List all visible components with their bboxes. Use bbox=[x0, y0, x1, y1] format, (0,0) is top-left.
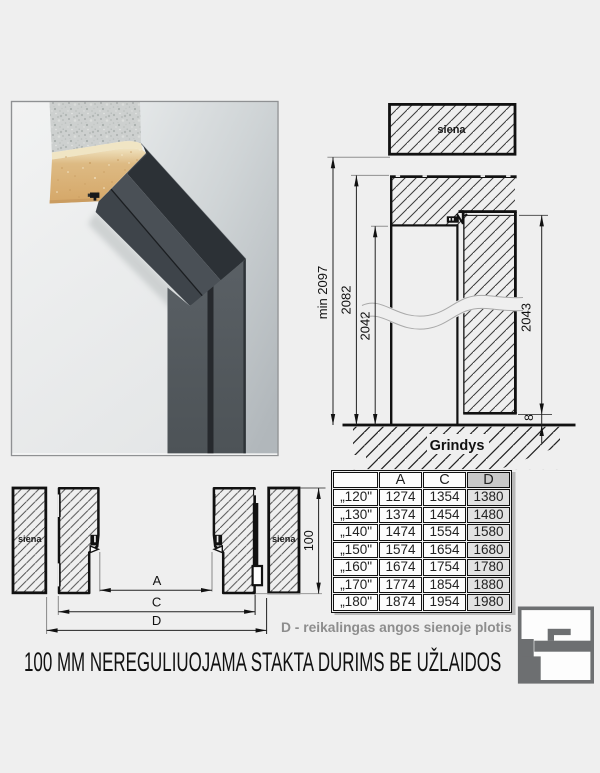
svg-text:Grindys: Grindys bbox=[430, 438, 485, 454]
svg-text:2082: 2082 bbox=[339, 286, 354, 315]
svg-text:2042: 2042 bbox=[358, 312, 373, 341]
svg-text:siena: siena bbox=[272, 534, 296, 544]
svg-text:D: D bbox=[152, 613, 161, 628]
svg-text:100: 100 bbox=[302, 530, 316, 551]
svg-text:min 2097: min 2097 bbox=[315, 266, 330, 319]
svg-text:siena: siena bbox=[437, 124, 466, 136]
svg-text:siena: siena bbox=[18, 534, 42, 544]
svg-text:C: C bbox=[152, 595, 161, 610]
svg-text:2043: 2043 bbox=[519, 303, 534, 332]
svg-text:8: 8 bbox=[522, 414, 536, 421]
svg-text:A: A bbox=[153, 573, 162, 588]
